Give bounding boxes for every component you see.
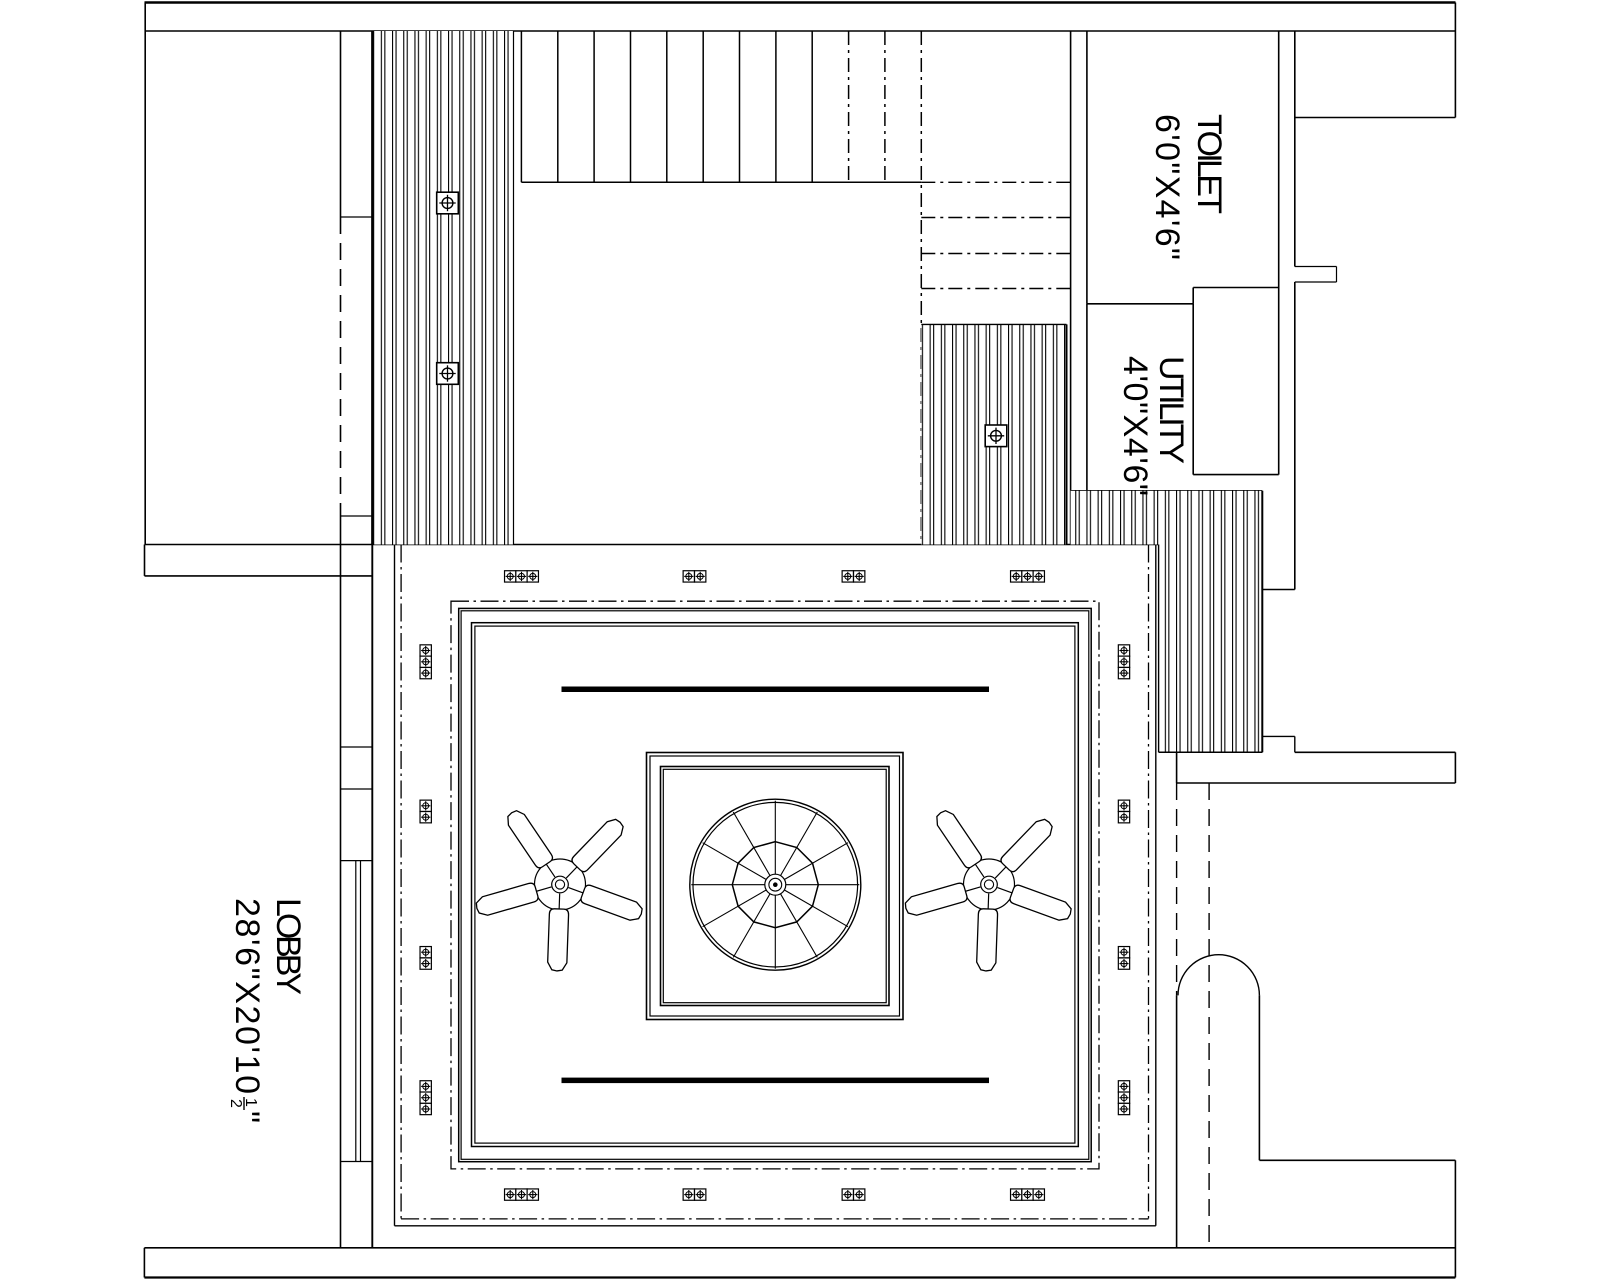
svg-text:UTILITY: UTILITY bbox=[1152, 356, 1190, 464]
svg-text:": " bbox=[228, 1111, 266, 1123]
svg-text:6'0"X4'6": 6'0"X4'6" bbox=[1148, 114, 1186, 260]
svg-text:TOILET: TOILET bbox=[1190, 114, 1228, 214]
svg-text:2: 2 bbox=[227, 1099, 244, 1108]
svg-text:28'6"X20'10: 28'6"X20'10 bbox=[228, 898, 266, 1094]
svg-text:4'0"X4'6": 4'0"X4'6" bbox=[1116, 356, 1154, 496]
svg-text:LOBBY: LOBBY bbox=[269, 898, 307, 995]
